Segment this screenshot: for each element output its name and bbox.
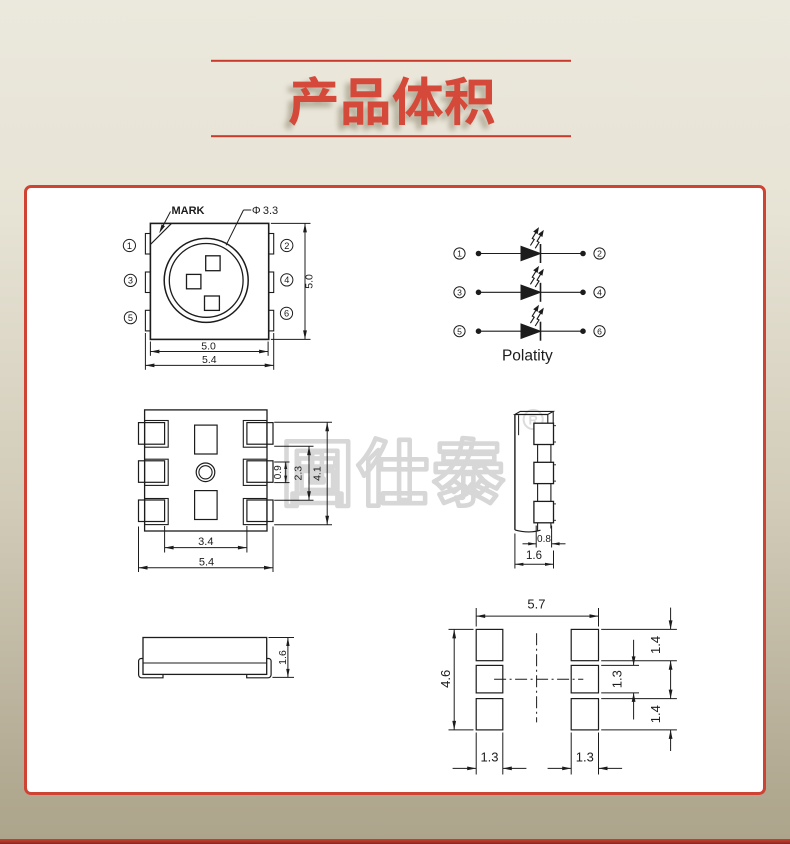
svg-text:6: 6 — [597, 326, 602, 336]
svg-text:Φ 3.3: Φ 3.3 — [252, 205, 278, 217]
svg-text:1: 1 — [127, 241, 132, 251]
svg-text:Polatity: Polatity — [502, 348, 553, 365]
svg-text:0.8: 0.8 — [537, 534, 551, 545]
svg-text:6: 6 — [284, 309, 289, 319]
svg-text:0.9: 0.9 — [273, 465, 284, 479]
svg-text:4: 4 — [597, 287, 602, 297]
svg-text:MARK: MARK — [172, 205, 205, 217]
svg-text:1.3: 1.3 — [576, 750, 594, 765]
svg-text:1.4: 1.4 — [648, 636, 663, 654]
svg-text:5.7: 5.7 — [527, 597, 545, 612]
svg-text:4.1: 4.1 — [312, 466, 324, 481]
svg-text:3.4: 3.4 — [198, 536, 213, 548]
svg-text:1.3: 1.3 — [610, 670, 625, 688]
svg-text:2.3: 2.3 — [293, 466, 305, 481]
svg-text:1.4: 1.4 — [648, 705, 663, 723]
svg-text:5: 5 — [128, 313, 133, 323]
svg-text:3: 3 — [128, 276, 133, 286]
svg-text:2: 2 — [597, 249, 602, 259]
svg-text:2: 2 — [284, 241, 289, 251]
svg-text:1.3: 1.3 — [480, 750, 498, 765]
svg-text:1: 1 — [457, 249, 462, 259]
svg-text:1.6: 1.6 — [526, 550, 542, 562]
svg-text:3: 3 — [457, 287, 462, 297]
svg-text:5.4: 5.4 — [202, 354, 217, 366]
svg-text:5.0: 5.0 — [304, 274, 316, 289]
svg-text:4.6: 4.6 — [438, 670, 453, 688]
svg-text:1.6: 1.6 — [277, 650, 289, 665]
svg-text:5: 5 — [457, 326, 462, 336]
svg-text:5.0: 5.0 — [201, 340, 216, 352]
svg-text:4: 4 — [284, 275, 289, 285]
svg-text:5.4: 5.4 — [199, 556, 214, 568]
